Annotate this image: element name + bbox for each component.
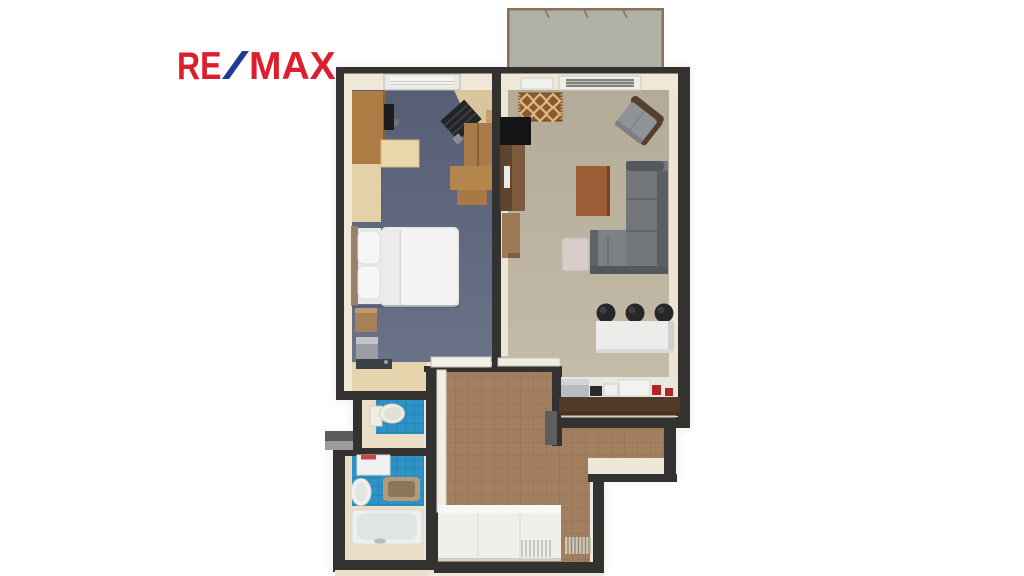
svg-text:RE: RE — [177, 44, 221, 88]
svg-text:MAX: MAX — [249, 45, 336, 88]
